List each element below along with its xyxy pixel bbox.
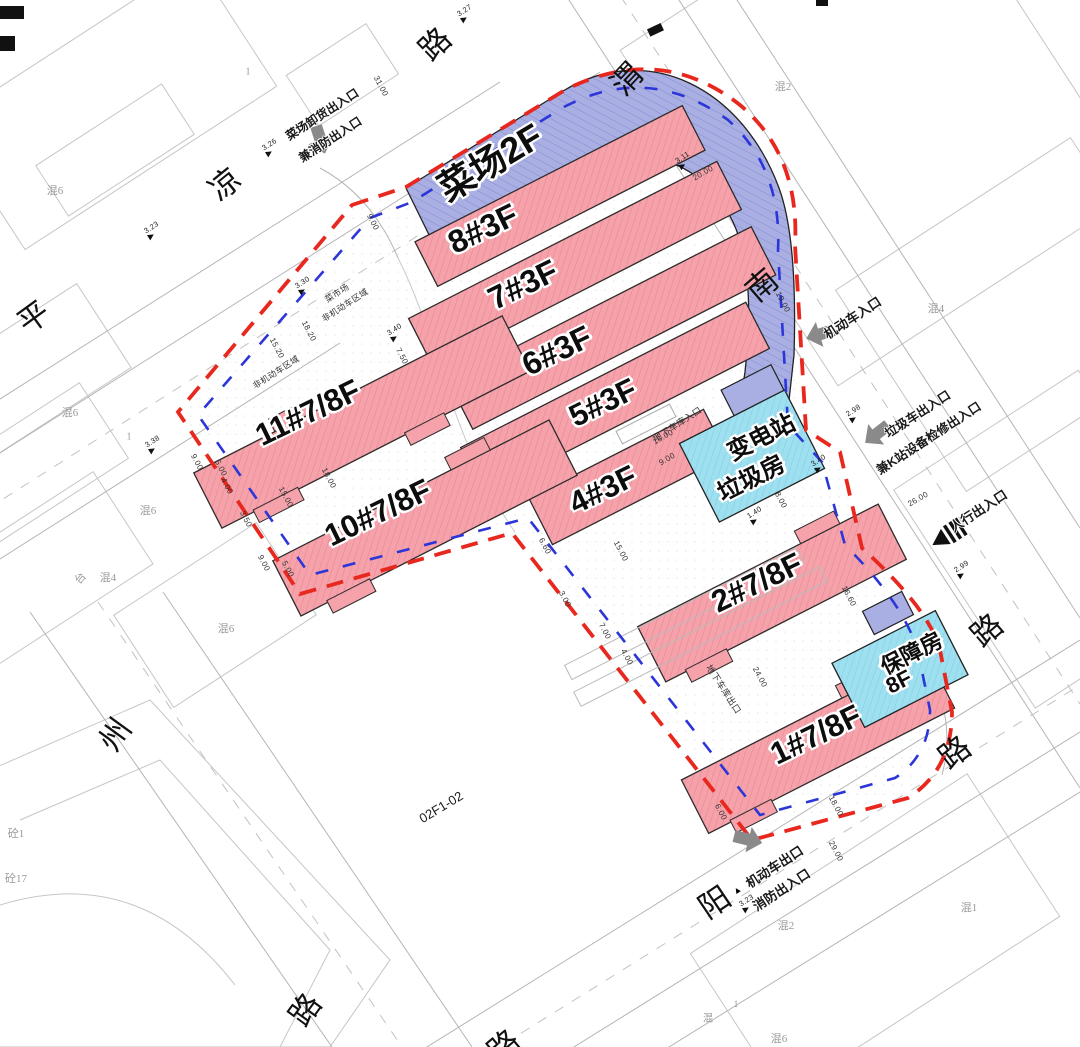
parcel-label: 混6 (140, 502, 157, 518)
parcel-label: 混6 (218, 620, 235, 636)
parcel-label: 砼1 (8, 825, 25, 841)
parcel-label: 混1 (961, 899, 978, 915)
site-plan-canvas: 菜场2F 8#3F 7#3F 6#3F 5#3F 4#3F 11#7/8F 10… (0, 0, 1080, 1047)
parcel-label: 混2 (778, 917, 795, 933)
parcel-label: 混4 (928, 300, 945, 316)
parcel-label: 1 (127, 432, 132, 443)
parcel-label: 混2 (775, 78, 792, 94)
parcel-label: 混6 (771, 1030, 788, 1046)
parcel-label: 混6 (62, 404, 79, 420)
parcel-label: 1 (246, 67, 251, 78)
parcel-label: 砼17 (5, 870, 27, 886)
parcel-label: 混4 (100, 569, 117, 585)
parcel-label: 混6 (47, 182, 64, 198)
parcel-label: 1 (734, 999, 739, 1009)
parcel-label: 混 (703, 1010, 713, 1025)
